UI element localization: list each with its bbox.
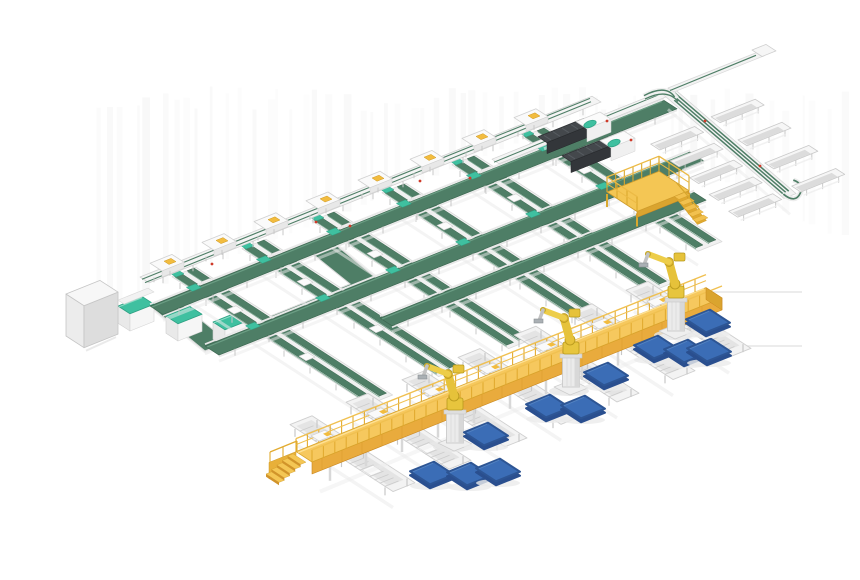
pallet-4 bbox=[476, 459, 520, 487]
pallet-6 bbox=[561, 396, 605, 424]
factory-scene-canvas bbox=[0, 0, 860, 580]
sorter-return-stub bbox=[668, 44, 776, 92]
industrial-sortation-render bbox=[0, 0, 860, 580]
